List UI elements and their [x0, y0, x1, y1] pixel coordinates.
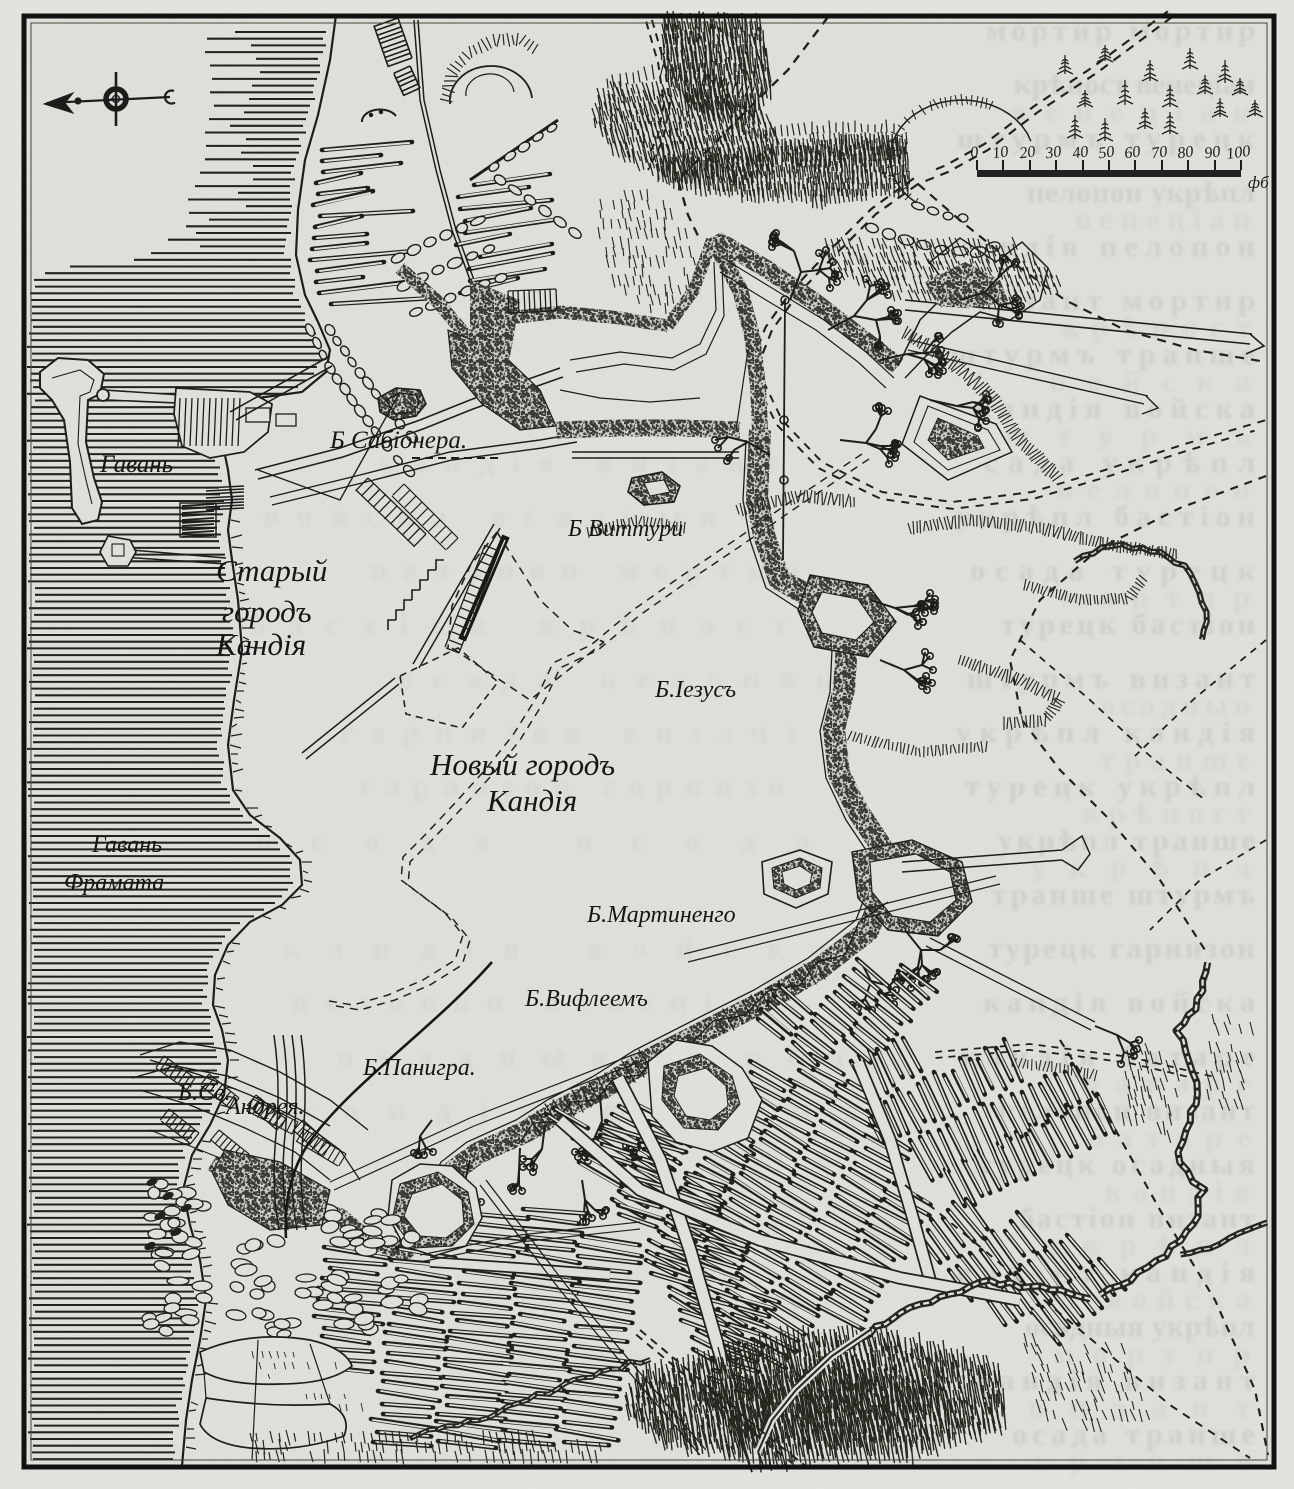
svg-text:10: 10 — [991, 143, 1009, 162]
svg-text:60: 60 — [1123, 143, 1141, 162]
svg-text:50: 50 — [1097, 143, 1115, 162]
svg-text:70: 70 — [1150, 143, 1168, 162]
svg-text:фб: фб — [1248, 173, 1269, 192]
svg-text:80: 80 — [1176, 143, 1194, 162]
svg-text:40: 40 — [1071, 143, 1089, 162]
svg-text:30: 30 — [1043, 143, 1062, 162]
svg-text:100: 100 — [1225, 143, 1251, 163]
svg-text:20: 20 — [1018, 143, 1036, 162]
svg-text:90: 90 — [1203, 143, 1221, 162]
